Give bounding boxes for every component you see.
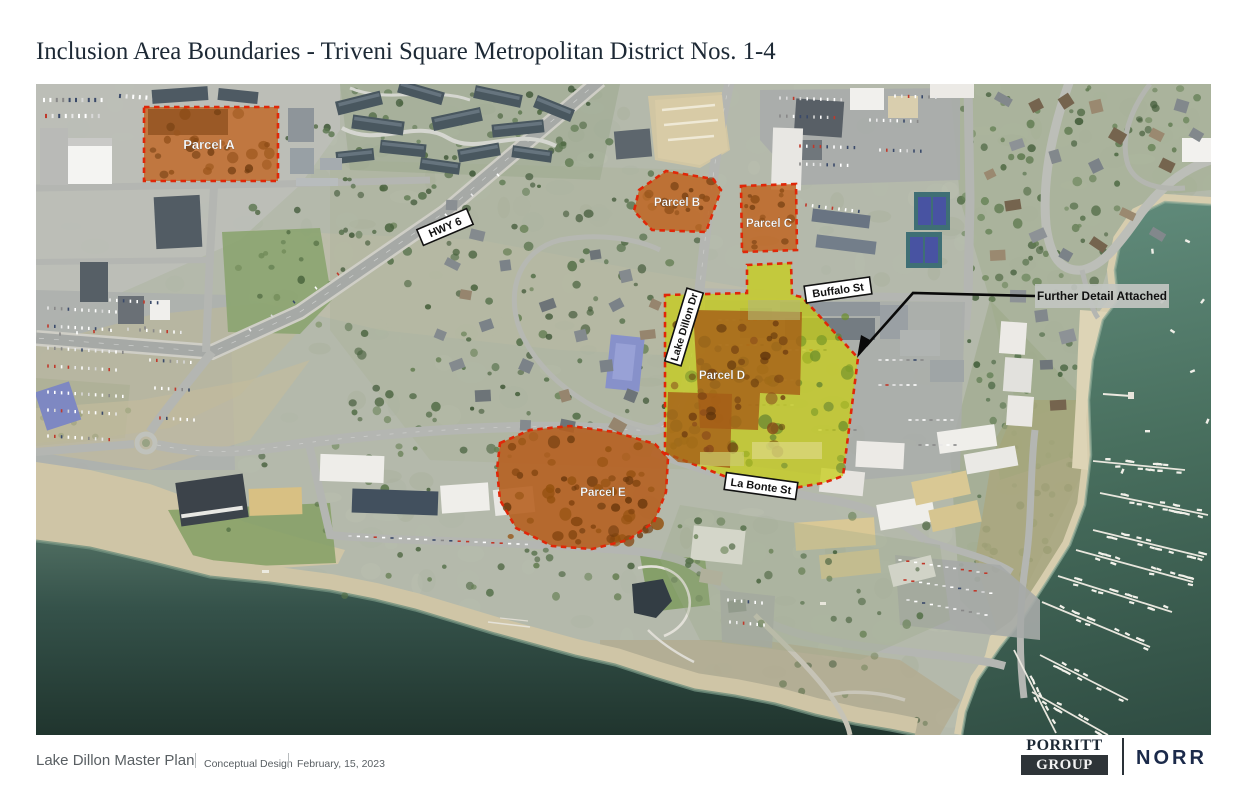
svg-text:Parcel A: Parcel A — [183, 137, 235, 152]
svg-text:Parcel B: Parcel B — [654, 197, 700, 209]
svg-text:Further Detail Attached: Further Detail Attached — [1037, 289, 1167, 303]
svg-text:Parcel C: Parcel C — [746, 218, 792, 230]
svg-text:Parcel E: Parcel E — [580, 487, 626, 499]
svg-text:Parcel D: Parcel D — [699, 370, 745, 382]
